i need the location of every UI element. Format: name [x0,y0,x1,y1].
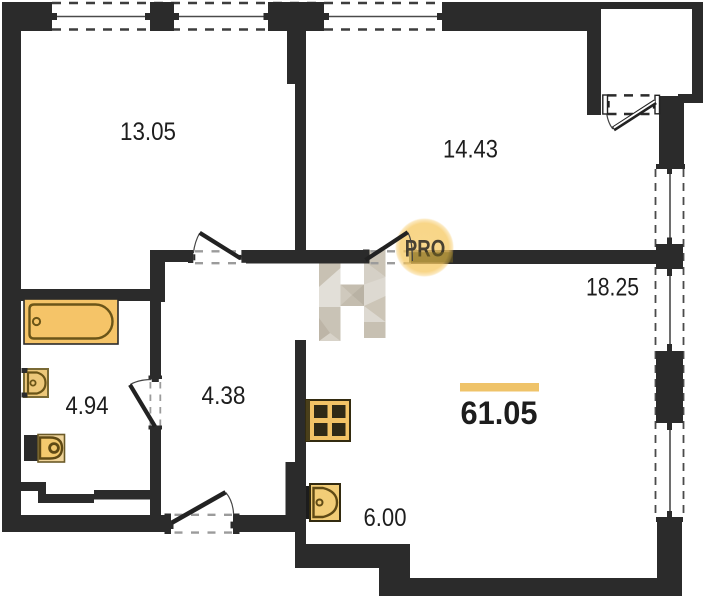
svg-text:13.05: 13.05 [120,118,176,146]
svg-text:4.94: 4.94 [66,392,109,420]
svg-text:6.00: 6.00 [364,504,407,532]
svg-text:18.25: 18.25 [586,274,639,302]
svg-text:4.38: 4.38 [202,382,246,410]
svg-text:61.05: 61.05 [461,395,538,431]
svg-text:14.43: 14.43 [443,136,498,164]
